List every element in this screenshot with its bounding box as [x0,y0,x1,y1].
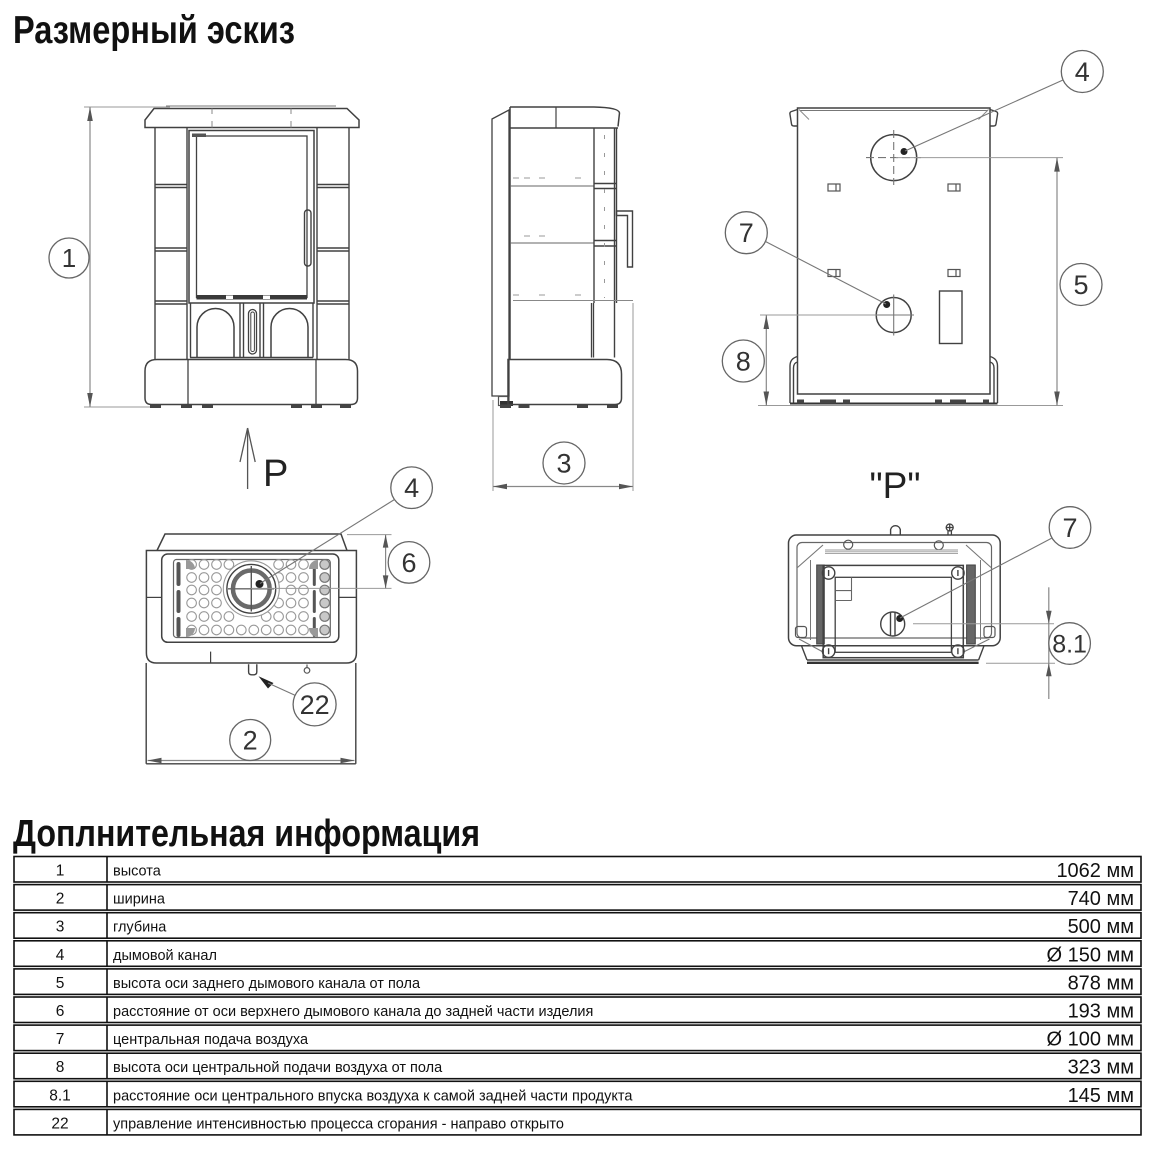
svg-text:1: 1 [56,863,65,880]
svg-text:193 мм: 193 мм [1068,1001,1134,1023]
svg-text:расстояние от оси верхнего дым: расстояние от оси верхнего дымового кана… [113,1004,593,1020]
svg-text:1: 1 [62,243,76,273]
svg-text:22: 22 [51,1115,68,1132]
svg-text:8.1: 8.1 [49,1087,71,1104]
svg-text:4: 4 [1075,57,1090,87]
svg-text:878 мм: 878 мм [1068,972,1134,994]
svg-text:5: 5 [56,975,65,992]
svg-text:высота: высота [113,864,162,880]
svg-text:22: 22 [300,690,330,720]
svg-text:1062 мм: 1062 мм [1056,860,1134,882]
svg-text:Ø 100 мм: Ø 100 мм [1046,1029,1134,1051]
svg-text:323 мм: 323 мм [1068,1057,1134,1079]
svg-text:"P": "P" [870,465,921,506]
svg-text:глубина: глубина [113,920,167,936]
svg-text:центральная подача воздуха: центральная подача воздуха [113,1032,309,1048]
svg-text:высота оси центральной подачи: высота оси центральной подачи воздуха от… [113,1060,443,1076]
svg-text:500 мм: 500 мм [1068,916,1134,938]
svg-text:8: 8 [736,347,751,377]
svg-text:6: 6 [56,1003,65,1020]
svg-text:2: 2 [56,891,65,908]
svg-text:управление интенсивностью проц: управление интенсивностью процесса сгора… [113,1116,564,1132]
svg-text:расстояние оси центрального вп: расстояние оси центрального впуска возду… [113,1088,633,1104]
svg-text:8.1: 8.1 [1052,631,1087,659]
svg-text:ширина: ширина [113,892,166,908]
svg-text:P: P [263,453,288,495]
svg-text:4: 4 [404,473,419,503]
svg-text:4: 4 [56,947,65,964]
svg-text:высота оси заднего дымового ка: высота оси заднего дымового канала от по… [113,976,421,992]
svg-text:7: 7 [56,1031,65,1048]
svg-text:дымовой канал: дымовой канал [113,948,217,964]
svg-text:Доплнительная информация: Доплнительная информация [13,813,480,855]
svg-text:Размерный эскиз: Размерный эскиз [13,9,295,52]
svg-text:740 мм: 740 мм [1068,888,1134,910]
svg-text:6: 6 [401,548,416,578]
svg-text:7: 7 [1062,513,1077,543]
svg-text:3: 3 [56,919,65,936]
svg-text:7: 7 [739,218,754,248]
svg-text:5: 5 [1073,270,1088,300]
svg-text:8: 8 [56,1059,65,1076]
svg-text:145 мм: 145 мм [1068,1085,1134,1107]
svg-text:2: 2 [243,726,258,756]
svg-text:3: 3 [556,449,571,479]
svg-text:Ø 150 мм: Ø 150 мм [1046,944,1134,966]
